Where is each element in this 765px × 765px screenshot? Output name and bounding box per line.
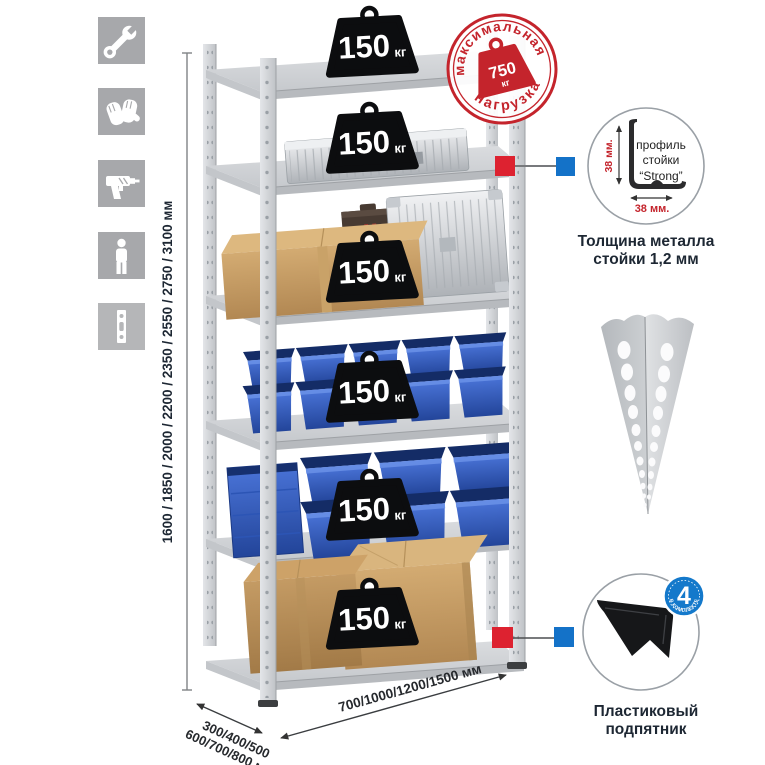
height-dimension-label: 1600 / 1850 / 2000 / 2200 / 2350 / 2550 … xyxy=(160,201,175,544)
load-value: 150 xyxy=(337,491,390,529)
person-icon xyxy=(98,232,145,279)
rack-post-icon xyxy=(98,303,145,350)
max-load-stamp: максимальная нагрузка 750 кг xyxy=(435,2,568,135)
load-badge-1: 150 кг xyxy=(326,6,415,74)
front-right-post xyxy=(507,36,527,669)
angle-post-image xyxy=(601,314,694,514)
drill-icon xyxy=(98,160,145,207)
kit-badge: 4 В КОМПЛЕКТЕ xyxy=(664,576,705,617)
rear-left-post xyxy=(203,44,216,646)
load-value: 150 xyxy=(337,253,390,291)
depth-dimension: 300/400/500 600/700/800 мм xyxy=(183,704,282,765)
kit-badge-number: 4 xyxy=(677,582,691,610)
callout-marker-bottom xyxy=(492,627,574,648)
load-unit: кг xyxy=(394,44,407,60)
wrench-icon xyxy=(98,17,145,64)
load-unit: кг xyxy=(394,389,407,405)
infographic-canvas: 1600 / 1850 / 2000 / 2200 / 2350 / 2550 … xyxy=(0,0,765,765)
shelving-infographic: 1600 / 1850 / 2000 / 2200 / 2350 / 2550 … xyxy=(0,0,765,765)
callout-marker-top xyxy=(495,156,575,176)
sidebar-icons xyxy=(98,17,145,350)
height-dimension: 1600 / 1850 / 2000 / 2200 / 2350 / 2550 … xyxy=(160,53,192,690)
profile-label-2: стойки xyxy=(643,153,680,167)
profile-dim-vertical: 38 мм. xyxy=(603,139,615,172)
load-unit: кг xyxy=(394,507,407,523)
profile-caption-line1: Толщина металла xyxy=(578,233,715,250)
profile-dim-horizontal: 38 мм. xyxy=(635,203,670,215)
load-value: 150 xyxy=(337,373,390,411)
profile-detail: 38 мм. 38 мм. профиль стойки “Strong” xyxy=(588,108,704,224)
load-value: 150 xyxy=(337,124,390,162)
load-value: 150 xyxy=(337,600,390,638)
load-unit: кг xyxy=(394,140,407,156)
profile-label-1: профиль xyxy=(636,138,686,152)
foot-caption-line1: Пластиковый xyxy=(594,703,699,720)
load-value: 150 xyxy=(337,28,390,66)
load-unit: кг xyxy=(394,616,407,632)
load-unit: кг xyxy=(394,269,407,285)
front-left-post xyxy=(258,58,278,707)
profile-label-3: “Strong” xyxy=(639,169,682,183)
load-badge-2: 150 кг xyxy=(326,102,415,170)
foot-caption-line2: подпятник xyxy=(605,721,686,738)
gloves-icon xyxy=(98,88,145,135)
profile-caption-line2: стойки 1,2 мм xyxy=(593,251,698,268)
